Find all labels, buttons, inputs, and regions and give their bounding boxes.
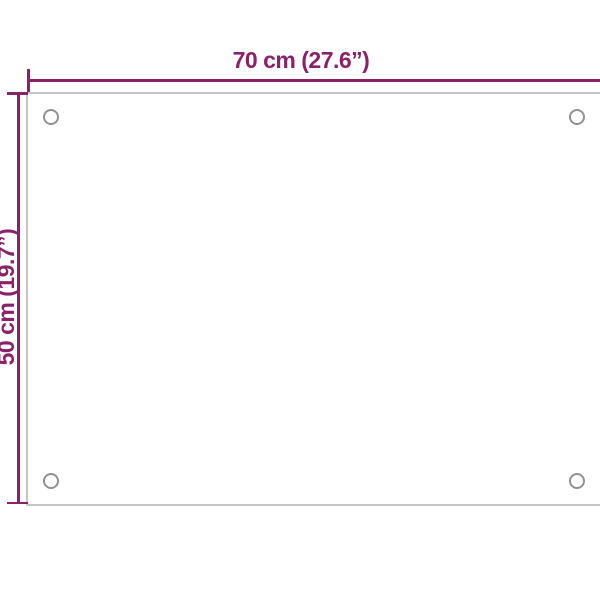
mounting-hole-top-left <box>43 109 59 125</box>
dimension-diagram: 70 cm (27.6”) 50 cm (19.7”) <box>0 0 600 600</box>
mounting-hole-top-right <box>569 109 585 125</box>
width-dimension-end-tick <box>27 69 30 92</box>
width-dimension-line <box>27 79 600 82</box>
mounting-hole-bottom-left <box>43 473 59 489</box>
height-dimension-end-tick-bottom <box>7 502 28 505</box>
width-dimension-label: 70 cm (27.6”) <box>151 46 451 74</box>
height-dimension-end-tick-top <box>7 92 28 95</box>
mounting-hole-bottom-right <box>569 473 585 489</box>
height-dimension-label: 50 cm (19.7”) <box>0 147 20 447</box>
panel-outline <box>26 92 600 506</box>
